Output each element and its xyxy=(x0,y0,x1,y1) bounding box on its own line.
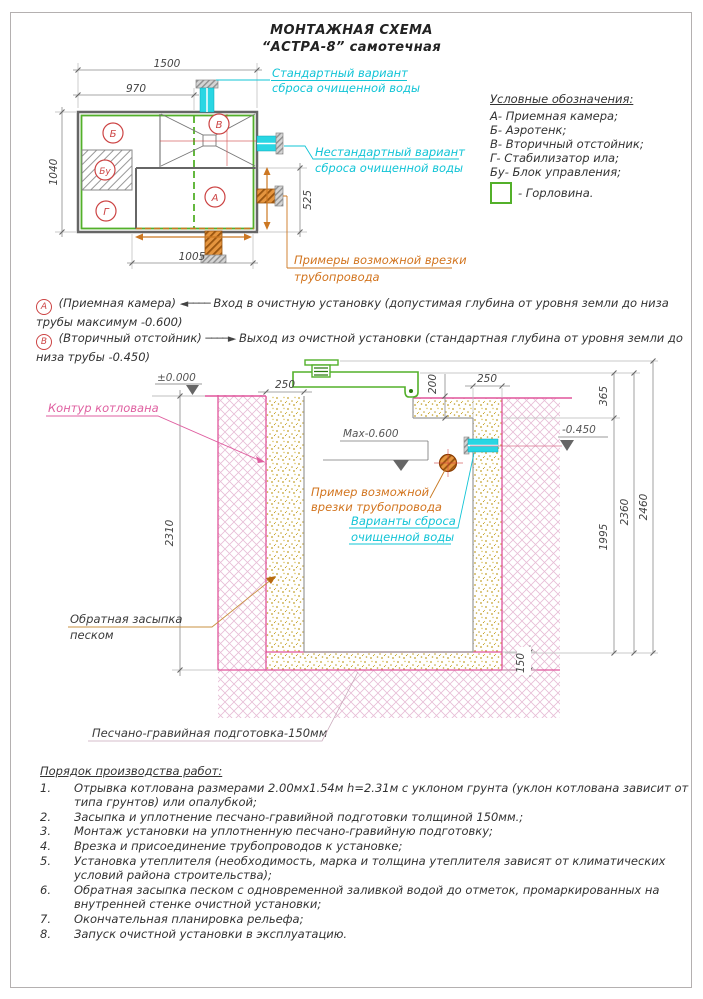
label-nonstandard-variant: Нестандартный вариант xyxy=(315,145,465,159)
label-examples2: трубопровода xyxy=(294,270,380,284)
label-standard-variant: Стандартный вариант xyxy=(272,66,408,80)
legend-item-neck: - Горловина. xyxy=(490,182,690,204)
label-pit-contour: Контур котлована xyxy=(48,401,159,415)
worklist-item: 8.Запуск очистной установки в эксплуатац… xyxy=(40,927,690,942)
dim-525: 525 xyxy=(302,190,314,210)
label-discharge-variants: Варианты сброса xyxy=(351,514,456,528)
level-max: Max-0.600 xyxy=(343,428,399,440)
level-out: -0.450 xyxy=(562,424,596,436)
inflow-arrow-icon: ◄──── xyxy=(180,297,210,310)
legend-title: Условные обозначения: xyxy=(490,92,690,106)
note-b: В (Вторичный отстойник) ────► Выход из о… xyxy=(36,331,691,366)
note-b-badge: В xyxy=(36,334,52,350)
right-pipe-coupling xyxy=(276,133,283,154)
work-order-list: Порядок производства работ: 1.Отрывка ко… xyxy=(40,764,690,941)
dim-1005: 1005 xyxy=(179,251,206,263)
bottom-inlet-pipe xyxy=(205,231,222,257)
arrowhead-right xyxy=(244,234,252,241)
neck-symbol xyxy=(490,182,512,204)
note-a-badge: А xyxy=(36,299,52,315)
dim-1040: 1040 xyxy=(48,158,60,185)
top-pipe-coupling xyxy=(196,80,218,88)
legend-item: Г- Стабилизатор ила; xyxy=(490,151,690,165)
drawing-sheet: МОНТАЖНАЯ СХЕМА “АСТРА-8” самотечная xyxy=(0,0,703,999)
legend-item: Бу- Блок управления; xyxy=(490,165,690,179)
soil-left xyxy=(218,395,266,670)
level-out-marker xyxy=(560,440,574,451)
plan-view: Б В Бу Г А 1500 970 1040 525 1005 Станда… xyxy=(48,58,467,284)
dim-1995: 1995 xyxy=(598,523,610,550)
dim-2360: 2360 xyxy=(619,498,631,525)
label-discharge-variants2: очищенной воды xyxy=(351,530,454,544)
dim-970: 970 xyxy=(126,83,146,95)
dim-200: 200 xyxy=(427,374,439,394)
worklist-item: 4.Врезка и присоединение трубопроводов к… xyxy=(40,839,690,854)
dim-365: 365 xyxy=(598,386,610,406)
dim-150: 150 xyxy=(515,653,527,673)
dim-1500: 1500 xyxy=(154,58,181,70)
legend-item: Б- Аэротенк; xyxy=(490,123,690,137)
label-standard-variant2: сброса очищенной воды xyxy=(272,81,420,95)
label-nonstandard-variant2: сброса очищенной воды xyxy=(315,161,463,175)
legend-item: В- Вторичный отстойник; xyxy=(490,137,690,151)
worklist-item: 3.Монтаж установки на уплотненную песчан… xyxy=(40,824,690,839)
compartment-v: В xyxy=(216,120,223,131)
worklist-item: 5.Установка утеплителя (необходимость, м… xyxy=(40,854,690,883)
dim-2460: 2460 xyxy=(638,493,650,520)
label-insertion-example: Пример возможной xyxy=(311,485,430,499)
right-inlet-coupling xyxy=(275,186,283,206)
compartment-a: А xyxy=(211,193,219,204)
sand-base xyxy=(266,652,502,670)
inlet-pipe-crosshair xyxy=(434,449,463,477)
legend: Условные обозначения: А- Приемная камера… xyxy=(490,92,690,204)
label-insertion-example2: врезки трубопровода xyxy=(311,500,442,514)
label-backfill: Обратная засыпка xyxy=(70,612,182,626)
legend-item: А- Приемная камера; xyxy=(490,109,690,123)
insertion-leader xyxy=(430,470,445,498)
dim-250-right: 250 xyxy=(477,373,497,385)
outflow-arrow-icon: ────► xyxy=(205,332,235,345)
level-zero-marker xyxy=(186,385,199,395)
soil-bottom xyxy=(218,670,560,718)
label-base-prep: Песчано-гравийная подготовка-150мм xyxy=(92,726,328,740)
compartment-b: Б xyxy=(110,129,117,140)
label-backfill2: песком xyxy=(70,628,114,642)
arrowhead-left xyxy=(135,234,143,241)
plan-hopper-center xyxy=(203,135,216,146)
soil-right xyxy=(502,398,560,670)
label-examples: Примеры возможной врезки xyxy=(294,253,467,267)
lid-latch xyxy=(409,389,413,393)
arrowhead-down xyxy=(264,222,271,230)
dim-250-left: 250 xyxy=(275,379,295,391)
worklist-item: 7.Окончательная планировка рельефа; xyxy=(40,912,690,927)
note-a: А (Приемная камера) ◄──── Вход в очистну… xyxy=(36,296,691,331)
dim-2310: 2310 xyxy=(164,519,176,546)
worklist-item: 2.Засыпка и уплотнение песчано-гравийной… xyxy=(40,810,690,825)
section-view: ±0.000 Max-0.600 -0.450 250 250 200 365 … xyxy=(46,359,658,742)
worklist-item: 1.Отрывка котлована размерами 2.00мх1.54… xyxy=(40,781,690,810)
level-max-lines xyxy=(323,441,428,460)
compartment-bu: Бу xyxy=(99,167,111,177)
worklist-item: 6.Обратная засыпка песком с одновременно… xyxy=(40,883,690,912)
level-max-marker xyxy=(393,460,409,471)
sand-left xyxy=(266,396,304,652)
level-zero: ±0.000 xyxy=(157,372,196,384)
worklist-title: Порядок производства работ: xyxy=(40,764,690,779)
notes: А (Приемная камера) ◄──── Вход в очистну… xyxy=(36,296,691,366)
